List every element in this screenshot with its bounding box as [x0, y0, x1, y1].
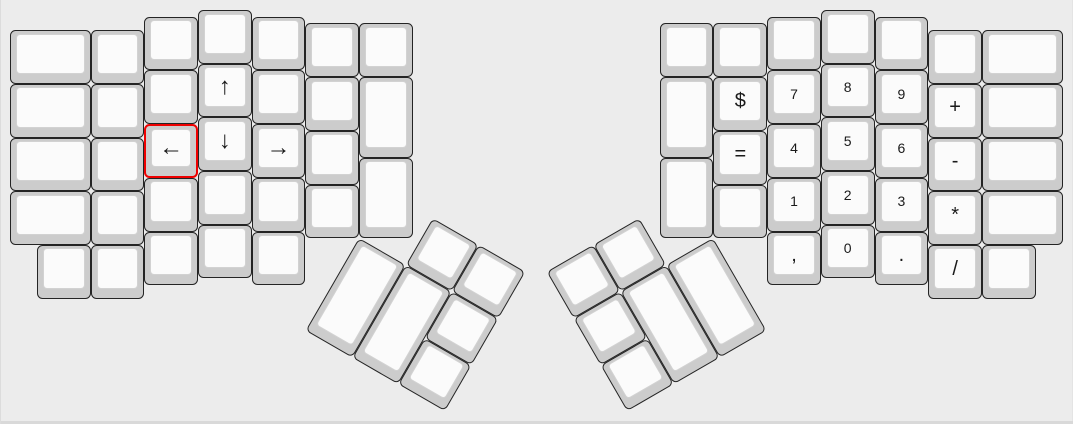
key-blank[interactable] [252, 17, 306, 71]
key-label: 1 [790, 194, 798, 208]
key-1[interactable]: 1 [767, 178, 821, 232]
key-blank[interactable] [144, 232, 198, 286]
key-label: 0 [844, 241, 852, 255]
key-blank[interactable] [359, 158, 413, 239]
key-label: 3 [898, 194, 906, 208]
keycap-top [43, 248, 85, 288]
key-blank[interactable] [982, 84, 1063, 138]
key-label: 6 [898, 141, 906, 155]
key-label: 4 [790, 141, 798, 155]
key-blank[interactable] [252, 232, 306, 286]
key-blank[interactable] [10, 138, 91, 192]
keycap-top [988, 34, 1057, 74]
key-blank[interactable] [982, 191, 1063, 245]
key-blank[interactable] [144, 178, 198, 232]
key-blank[interactable] [91, 245, 145, 299]
key-label: 5 [844, 134, 852, 148]
key-blank[interactable] [91, 84, 145, 138]
key-label: 8 [844, 80, 852, 94]
keycap-top: 0 [827, 228, 869, 268]
keycap-top [988, 87, 1057, 127]
key-label: ← [159, 136, 183, 160]
key-blank[interactable] [982, 245, 1036, 299]
key-blank[interactable] [91, 30, 145, 84]
key-blank[interactable] [305, 77, 359, 131]
keycap-top [988, 248, 1030, 288]
key-minus[interactable]: - [928, 138, 982, 192]
keycap-top [666, 161, 708, 228]
key-label: $ [735, 91, 746, 111]
keycap-top [365, 161, 407, 228]
keycap-top: → [258, 128, 300, 168]
key-blank[interactable] [91, 191, 145, 245]
key-label: / [952, 259, 958, 279]
key-label: → [266, 136, 290, 160]
key-8[interactable]: 8 [821, 64, 875, 118]
key-equals[interactable]: = [713, 131, 767, 185]
key-blank[interactable] [144, 17, 198, 71]
keycap-top: + [934, 87, 976, 127]
key-blank[interactable] [305, 131, 359, 185]
keycap-top: ↓ [204, 121, 246, 161]
keycap-top [311, 81, 353, 121]
key-7[interactable]: 7 [767, 70, 821, 124]
keycap-top [258, 74, 300, 114]
keycap-top: , [773, 235, 815, 275]
keycap-top [258, 20, 300, 60]
key-down-arrow[interactable]: ↓ [198, 117, 252, 171]
key-blank[interactable] [10, 191, 91, 245]
key-label: 9 [898, 87, 906, 101]
key-blank[interactable] [198, 171, 252, 225]
key-blank[interactable] [10, 84, 91, 138]
key-blank[interactable] [198, 10, 252, 64]
keycap-top: - [934, 141, 976, 181]
keycap-top [97, 195, 139, 235]
keycap-top [365, 27, 407, 67]
keycap-top [204, 14, 246, 54]
keycap-top [719, 27, 761, 67]
keycap-top [204, 175, 246, 215]
key-label: = [734, 144, 746, 164]
keycap-top: 1 [773, 181, 815, 221]
keycap-top [311, 134, 353, 174]
keycap-top: / [934, 248, 976, 288]
keycap-top: * [934, 195, 976, 235]
key-blank[interactable] [37, 245, 91, 299]
keycap-top [773, 20, 815, 60]
key-blank[interactable] [10, 30, 91, 84]
keycap-top: ↑ [204, 67, 246, 107]
keycap-top: ← [151, 129, 191, 167]
keycap-top [97, 248, 139, 288]
key-blank[interactable] [91, 138, 145, 192]
key-label: 2 [844, 188, 852, 202]
keycap-top: 6 [881, 128, 923, 168]
keycap-top [16, 141, 85, 181]
key-0[interactable]: 0 [821, 225, 875, 279]
keycap-top [554, 251, 610, 307]
keycap-top [311, 188, 353, 228]
keycap-top: 3 [881, 181, 923, 221]
key-4[interactable]: 4 [767, 124, 821, 178]
keycap-top [988, 141, 1057, 181]
keycap-top [881, 20, 923, 60]
key-blank[interactable] [982, 138, 1063, 192]
key-blank[interactable] [982, 30, 1063, 84]
keyboard-case: ←↑↓→$=741,8520963.+-*/ [0, 0, 1073, 424]
key-6[interactable]: 6 [875, 124, 929, 178]
keycap-top [311, 27, 353, 67]
key-label: ↓ [219, 129, 231, 153]
keycap-top: $ [719, 81, 761, 121]
key-blank[interactable] [713, 23, 767, 77]
keycap-top [97, 87, 139, 127]
keycap-top [666, 27, 708, 67]
keycap-top [97, 34, 139, 74]
key-blank[interactable] [305, 23, 359, 77]
key-label: + [949, 97, 961, 117]
key-blank[interactable] [359, 77, 413, 158]
key-blank[interactable] [660, 77, 714, 158]
key-period[interactable]: . [875, 232, 929, 286]
key-blank[interactable] [767, 17, 821, 71]
key-asterisk[interactable]: * [928, 191, 982, 245]
keycap-top: 2 [827, 175, 869, 215]
keycap-top [719, 188, 761, 228]
keycap-top [150, 235, 192, 275]
keycap-top: 7 [773, 74, 815, 114]
key-label: , [791, 245, 797, 265]
key-up-arrow[interactable]: ↑ [198, 64, 252, 118]
key-blank[interactable] [660, 158, 714, 239]
keycap-top [666, 81, 708, 148]
key-2[interactable]: 2 [821, 171, 875, 225]
key-blank[interactable] [305, 185, 359, 239]
keycap-top: 4 [773, 128, 815, 168]
key-blank[interactable] [875, 17, 929, 71]
keycap-top [258, 235, 300, 275]
key-comma[interactable]: , [767, 232, 821, 286]
key-slash[interactable]: / [928, 245, 982, 299]
keycap-top [97, 141, 139, 181]
key-plus[interactable]: + [928, 84, 982, 138]
key-blank[interactable] [928, 30, 982, 84]
key-left-arrow[interactable]: ← [144, 124, 198, 178]
key-blank[interactable] [821, 10, 875, 64]
keycap-top: 9 [881, 74, 923, 114]
key-blank[interactable] [252, 178, 306, 232]
key-blank[interactable] [252, 70, 306, 124]
key-blank[interactable] [359, 23, 413, 77]
key-5[interactable]: 5 [821, 117, 875, 171]
keycap-top: 5 [827, 121, 869, 161]
key-dollar[interactable]: $ [713, 77, 767, 131]
keycap-top [150, 20, 192, 60]
keycap-top [934, 34, 976, 74]
keycap-top [16, 195, 85, 235]
key-blank[interactable] [660, 23, 714, 77]
key-right-arrow[interactable]: → [252, 124, 306, 178]
key-9[interactable]: 9 [875, 70, 929, 124]
keycap-top [827, 14, 869, 54]
key-3[interactable]: 3 [875, 178, 929, 232]
keycap-top [16, 87, 85, 127]
keycap-top [365, 81, 407, 148]
keycap-top [258, 181, 300, 221]
keycap-top [462, 251, 518, 307]
key-label: . [899, 245, 905, 265]
keycap-top [150, 181, 192, 221]
key-label: - [952, 151, 959, 171]
keycap-top [16, 34, 85, 74]
keycap-top [150, 74, 192, 114]
keycap-top [204, 228, 246, 268]
key-label: 7 [790, 87, 798, 101]
keycap-top [988, 195, 1057, 235]
keycap-top: . [881, 235, 923, 275]
key-blank[interactable] [144, 70, 198, 124]
keycap-top: = [719, 134, 761, 174]
key-label: ↑ [219, 75, 231, 99]
key-label: * [951, 205, 959, 225]
key-blank[interactable] [198, 225, 252, 279]
keycap-top: 8 [827, 67, 869, 107]
key-blank[interactable] [713, 185, 767, 239]
